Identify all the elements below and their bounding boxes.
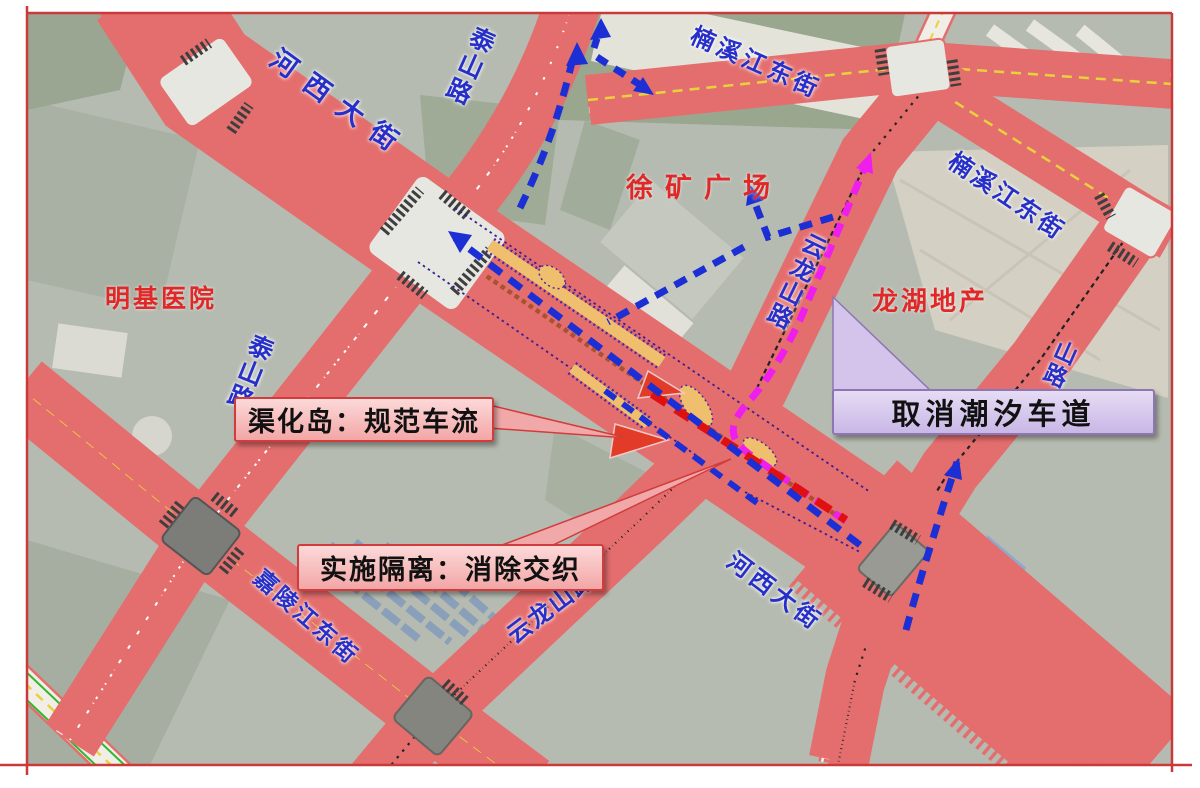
place-label-xukuang-square: 徐矿广场 [626, 166, 782, 205]
place-label-mingji-hospital: 明基医院 [105, 279, 217, 315]
callout-separation: 实施隔离：消除交织 [297, 544, 604, 591]
place-label-longhu-real-estate: 龙湖地产 [872, 281, 988, 318]
traffic-plan-map: 河西大街 泰山路 楠溪江东街 楠溪江东街 云龙山路 泰山路 山路 河西大街 云龙… [0, 0, 1200, 788]
callout-cancel-tidal-lane: 取消潮汐车道 [832, 389, 1155, 435]
callout-channelization-island: 渠化岛：规范车流 [234, 397, 494, 442]
